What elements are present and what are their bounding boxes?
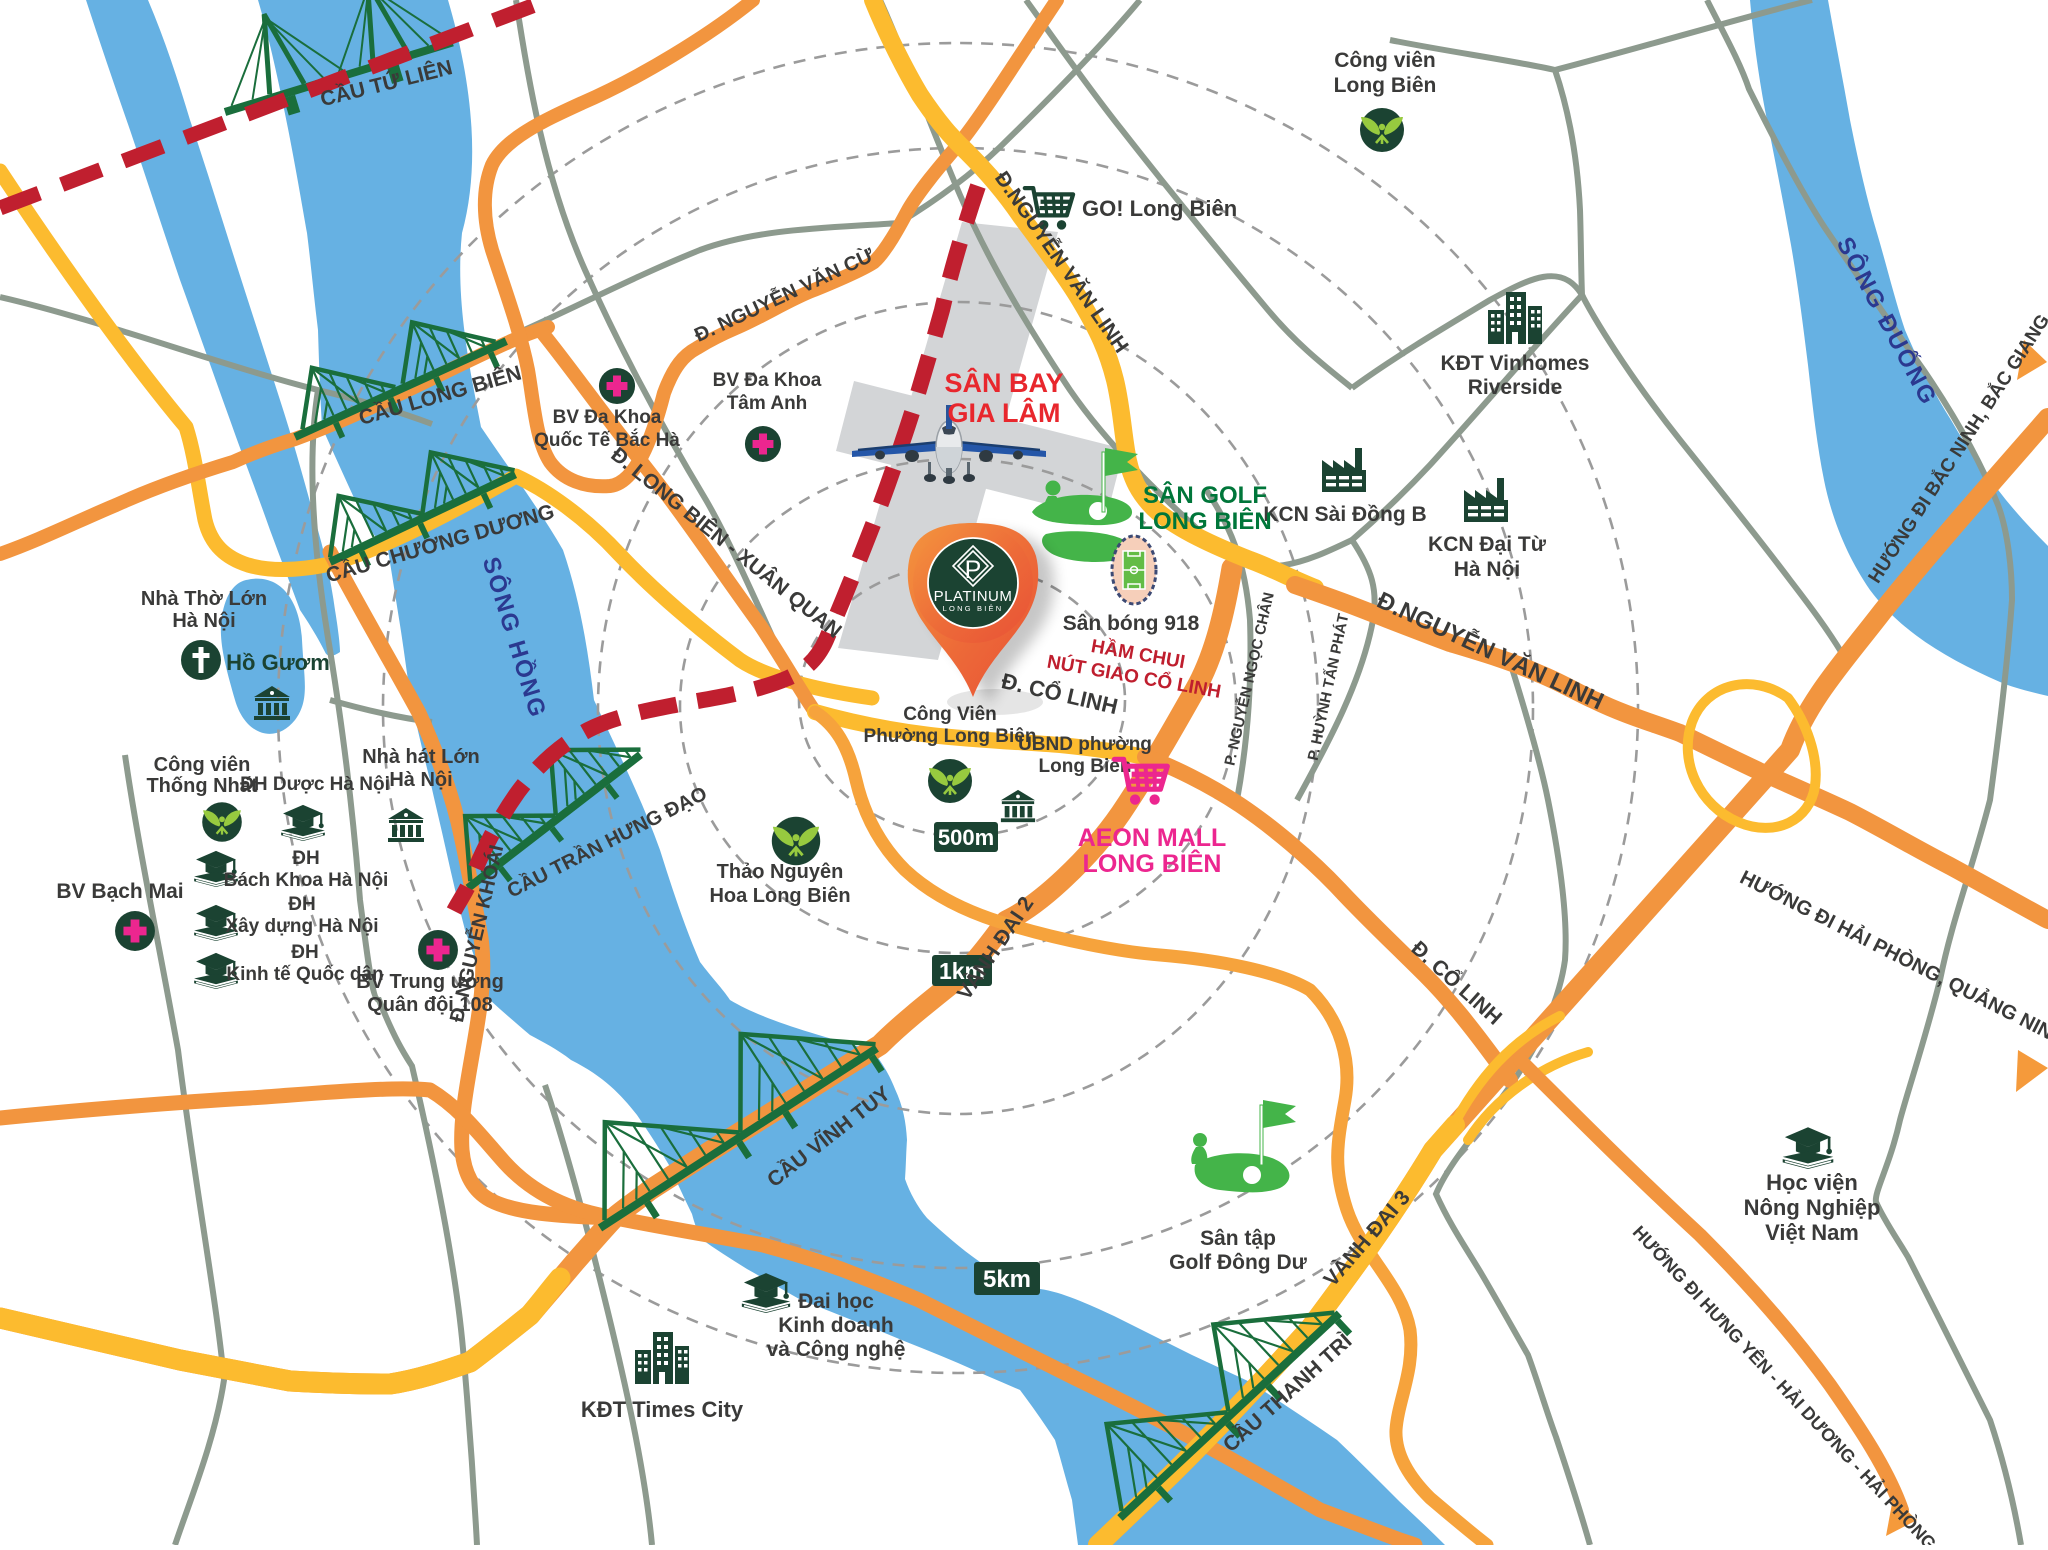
svg-text:BV Đa Khoa: BV Đa Khoa <box>553 407 662 428</box>
svg-text:PLATINUM: PLATINUM <box>934 588 1013 605</box>
svg-text:ĐH: ĐH <box>292 848 319 869</box>
svg-text:Sân tập: Sân tập <box>1200 1227 1276 1250</box>
svg-text:Học viện: Học viện <box>1766 1170 1858 1195</box>
svg-text:SÂN GOLF: SÂN GOLF <box>1143 481 1267 509</box>
svg-text:Phường Long Biên: Phường Long Biên <box>864 726 1037 747</box>
svg-text:Việt Nam: Việt Nam <box>1765 1220 1859 1245</box>
svg-text:LONG BIÊN: LONG BIÊN <box>1083 848 1222 878</box>
svg-text:KCN Đại Từ: KCN Đại Từ <box>1428 533 1547 556</box>
svg-text:Nhà hát Lớn: Nhà hát Lớn <box>362 746 480 768</box>
svg-text:BV Trung ương: BV Trung ương <box>356 971 504 993</box>
svg-text:Quốc Tế Bắc Hà: Quốc Tế Bắc Hà <box>534 429 680 451</box>
svg-text:Bách Khoa Hà Nội: Bách Khoa Hà Nội <box>224 870 389 891</box>
svg-text:LONG BIÊN: LONG BIÊN <box>1138 507 1271 535</box>
svg-text:ĐH Dược Hà Nội: ĐH Dược Hà Nội <box>240 774 390 795</box>
svg-text:KĐT Times City: KĐT Times City <box>581 1397 744 1422</box>
svg-text:ĐH: ĐH <box>288 894 315 915</box>
svg-text:KĐT Vinhomes: KĐT Vinhomes <box>1441 352 1590 375</box>
svg-text:P: P <box>965 556 982 584</box>
svg-text:Công viên: Công viên <box>1334 49 1436 72</box>
svg-text:Nông Nghiệp: Nông Nghiệp <box>1744 1195 1881 1220</box>
svg-text:LONG BIÊN: LONG BIÊN <box>943 604 1004 613</box>
svg-text:GO! Long Biên: GO! Long Biên <box>1082 196 1237 221</box>
svg-text:Nhà Thờ Lớn: Nhà Thờ Lớn <box>141 588 267 610</box>
svg-text:Đai học: Đai học <box>798 1290 874 1313</box>
svg-text:Sân bóng 918: Sân bóng 918 <box>1063 612 1200 635</box>
svg-text:Long Biên: Long Biên <box>1334 74 1437 97</box>
svg-text:Golf Đông Dư: Golf Đông Dư <box>1169 1251 1307 1274</box>
svg-text:Hồ Gươm: Hồ Gươm <box>226 650 330 675</box>
svg-text:và Công nghệ: và Công nghệ <box>767 1338 906 1361</box>
svg-text:UBND phường: UBND phường <box>1018 734 1152 755</box>
svg-text:Kinh doanh: Kinh doanh <box>778 1314 893 1337</box>
svg-text:Xây dựng Hà Nội: Xây dựng Hà Nội <box>225 916 378 937</box>
svg-text:BV Bạch Mai: BV Bạch Mai <box>56 880 183 903</box>
svg-text:BV Đa Khoa: BV Đa Khoa <box>713 370 822 391</box>
svg-text:Tâm Anh: Tâm Anh <box>727 393 808 414</box>
svg-text:KCN Sài Đồng B: KCN Sài Đồng B <box>1263 503 1426 526</box>
svg-text:Hà Nội: Hà Nội <box>389 769 452 791</box>
svg-text:Hoa Long Biên: Hoa Long Biên <box>709 885 850 907</box>
svg-text:GIA LÂM: GIA LÂM <box>948 397 1061 428</box>
svg-text:Hà Nội: Hà Nội <box>1454 558 1521 581</box>
svg-text:Công viên: Công viên <box>154 754 251 776</box>
svg-text:ĐH: ĐH <box>291 942 318 963</box>
svg-text:Quân đội 108: Quân đội 108 <box>367 994 493 1016</box>
svg-text:AEON MALL: AEON MALL <box>1078 824 1227 852</box>
svg-text:Riverside: Riverside <box>1468 376 1563 399</box>
svg-text:500m: 500m <box>938 825 994 850</box>
svg-text:Thảo Nguyên: Thảo Nguyên <box>717 861 844 883</box>
svg-text:SÂN BAY: SÂN BAY <box>944 367 1063 398</box>
svg-text:Hà Nội: Hà Nội <box>172 610 235 632</box>
svg-text:5km: 5km <box>983 1266 1031 1293</box>
